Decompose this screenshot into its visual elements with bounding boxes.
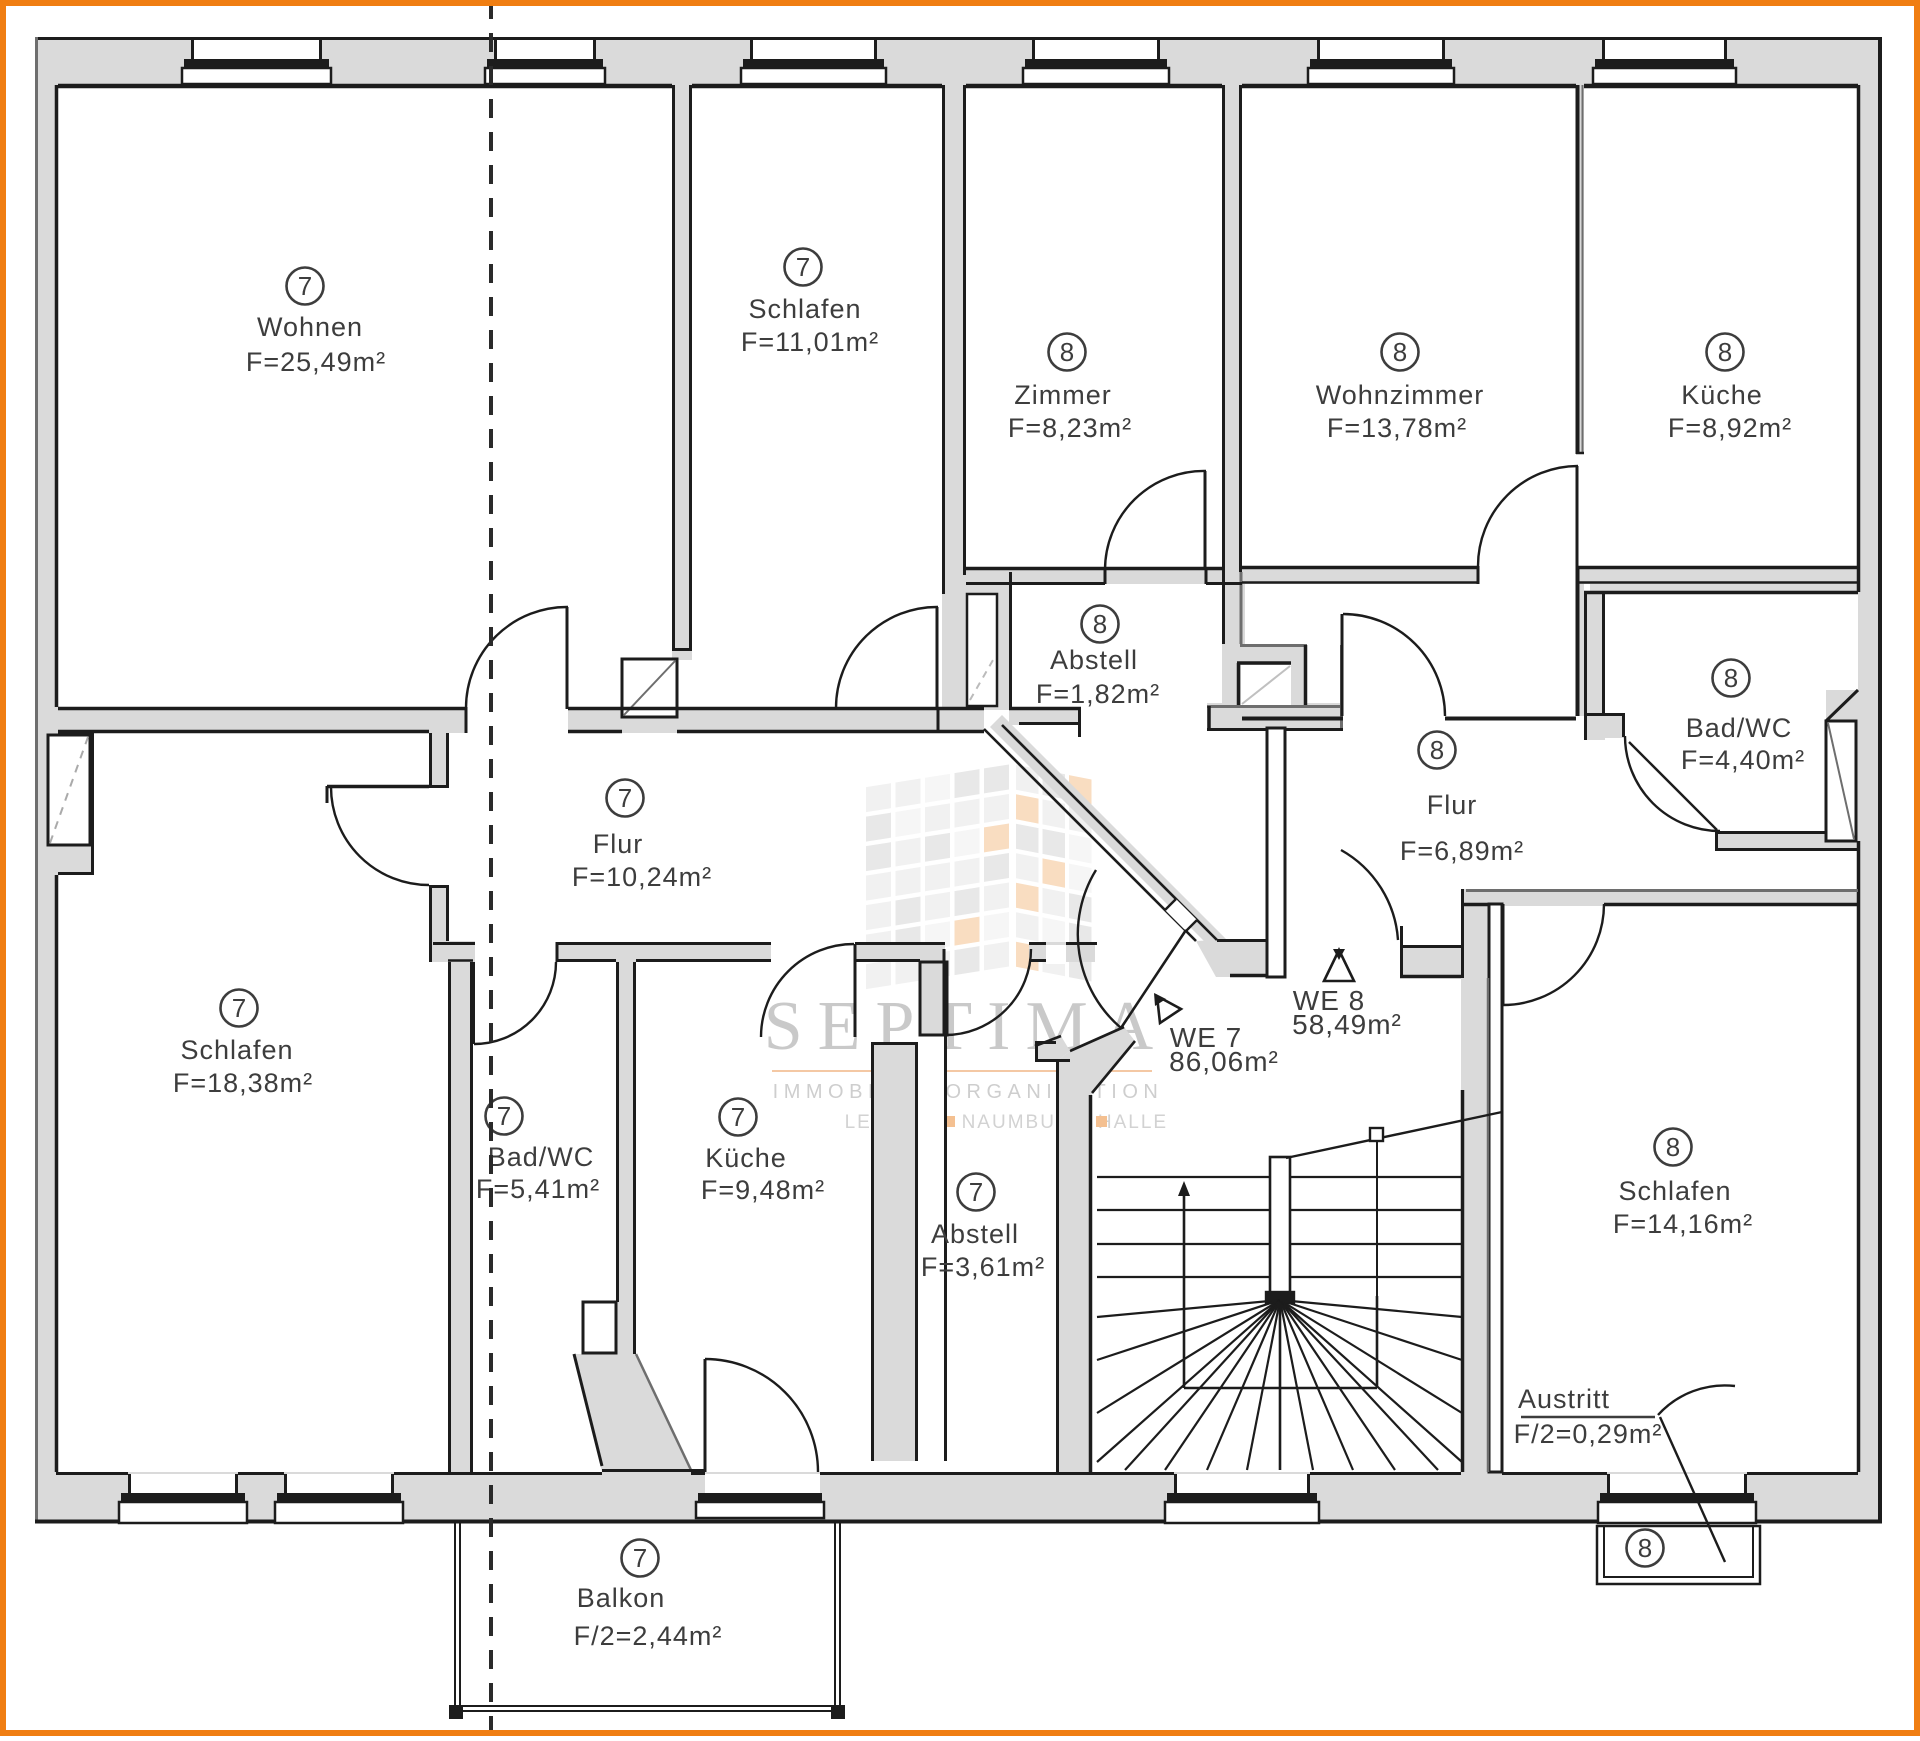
svg-text:Wohnen: Wohnen — [257, 312, 363, 342]
svg-text:7: 7 — [969, 1177, 983, 1207]
svg-text:Flur: Flur — [1427, 790, 1478, 820]
svg-text:8: 8 — [1393, 337, 1407, 367]
svg-text:F=4,40m²: F=4,40m² — [1681, 745, 1805, 775]
svg-text:8: 8 — [1718, 337, 1732, 367]
svg-text:F=1,82m²: F=1,82m² — [1036, 679, 1160, 709]
svg-text:7: 7 — [731, 1102, 745, 1132]
svg-text:F=10,24m²: F=10,24m² — [572, 862, 712, 892]
svg-text:7: 7 — [633, 1543, 647, 1573]
svg-text:8: 8 — [1430, 735, 1444, 765]
svg-text:Wohnzimmer: Wohnzimmer — [1316, 380, 1485, 410]
svg-text:IMMOBILIENORGANISATION: IMMOBILIENORGANISATION — [773, 1081, 1164, 1103]
svg-text:8: 8 — [1666, 1132, 1680, 1162]
svg-text:Schlafen: Schlafen — [748, 294, 861, 324]
svg-text:58,49m²: 58,49m² — [1292, 1009, 1402, 1040]
svg-text:F=25,49m²: F=25,49m² — [246, 347, 386, 377]
svg-text:7: 7 — [497, 1101, 511, 1131]
svg-text:Bad/WC: Bad/WC — [1686, 713, 1793, 743]
svg-text:8: 8 — [1638, 1533, 1652, 1563]
svg-text:Schlafen: Schlafen — [180, 1035, 293, 1065]
svg-text:F=14,16m²: F=14,16m² — [1613, 1209, 1753, 1239]
svg-text:Küche: Küche — [705, 1143, 787, 1173]
svg-text:Balkon: Balkon — [577, 1583, 666, 1613]
svg-text:F=18,38m²: F=18,38m² — [173, 1068, 313, 1098]
svg-text:8: 8 — [1093, 609, 1107, 639]
svg-text:7: 7 — [796, 252, 810, 282]
svg-text:Schlafen: Schlafen — [1618, 1176, 1731, 1206]
svg-text:Flur: Flur — [593, 829, 644, 859]
svg-text:F=3,61m²: F=3,61m² — [921, 1252, 1045, 1282]
svg-text:Abstell: Abstell — [1050, 645, 1138, 675]
svg-text:F=8,23m²: F=8,23m² — [1008, 413, 1132, 443]
svg-text:F=9,48m²: F=9,48m² — [701, 1175, 825, 1205]
svg-text:F/2=0,29m²: F/2=0,29m² — [1514, 1419, 1663, 1449]
svg-text:86,06m²: 86,06m² — [1169, 1046, 1279, 1077]
svg-text:7: 7 — [232, 993, 246, 1023]
svg-text:8: 8 — [1724, 663, 1738, 693]
svg-text:F=5,41m²: F=5,41m² — [476, 1174, 600, 1204]
svg-text:7: 7 — [298, 271, 312, 301]
svg-text:8: 8 — [1060, 337, 1074, 367]
svg-text:Zimmer: Zimmer — [1014, 380, 1111, 410]
svg-text:Küche: Küche — [1681, 380, 1763, 410]
svg-text:F=13,78m²: F=13,78m² — [1327, 413, 1467, 443]
svg-text:Bad/WC: Bad/WC — [488, 1142, 595, 1172]
svg-text:Austritt: Austritt — [1518, 1384, 1610, 1414]
svg-text:7: 7 — [618, 783, 632, 813]
svg-text:HALLE: HALLE — [1098, 1112, 1168, 1133]
svg-text:F=11,01m²: F=11,01m² — [741, 327, 879, 357]
svg-text:F/2=2,44m²: F/2=2,44m² — [574, 1621, 723, 1651]
svg-text:F=6,89m²: F=6,89m² — [1400, 836, 1524, 866]
svg-text:F=8,92m²: F=8,92m² — [1668, 413, 1792, 443]
svg-text:Abstell: Abstell — [931, 1219, 1019, 1249]
